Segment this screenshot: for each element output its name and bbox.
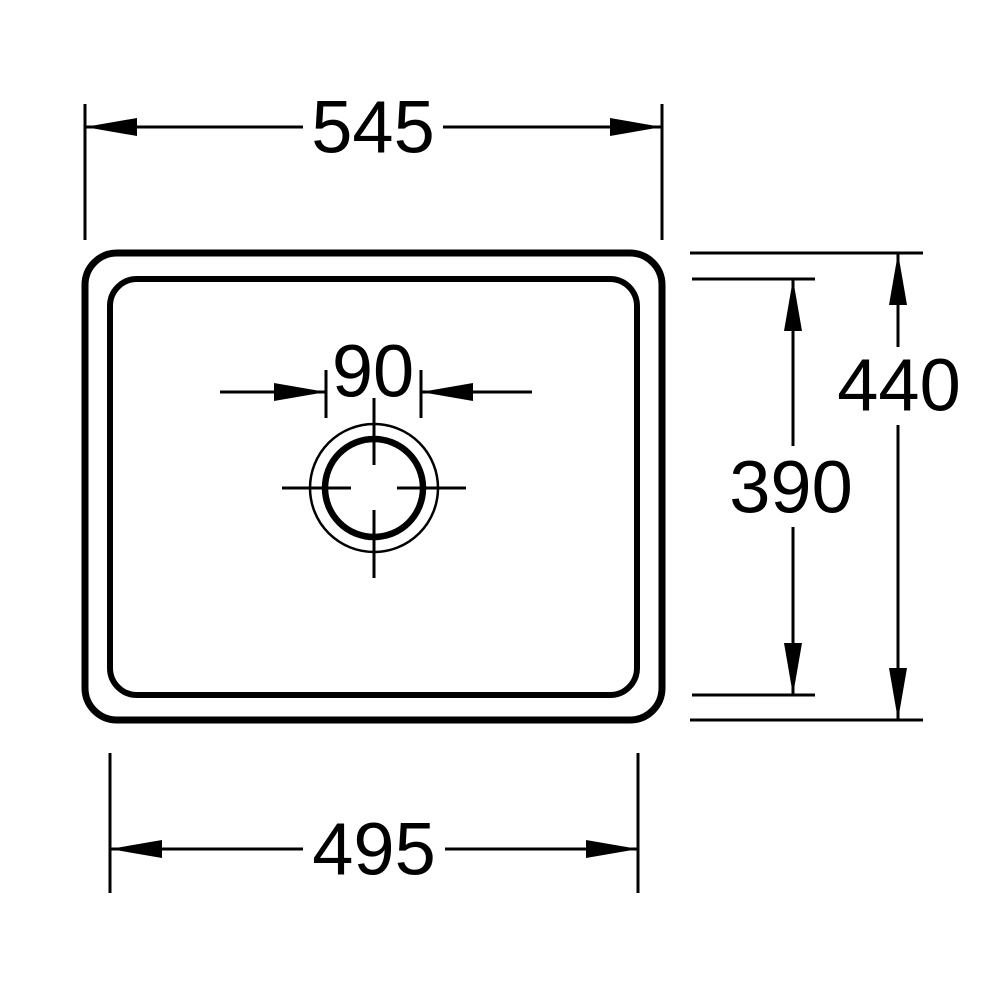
arrowhead-up [889,253,907,305]
dimension-label-drain-diameter: 90 [332,330,414,413]
arrowhead-pointing-left [421,383,473,401]
dimension-label-outer-height: 440 [837,344,960,427]
sink-outer-rim [85,253,662,720]
dimension-label-top-width: 545 [311,86,434,169]
dimension-drain-diameter: 90 [220,330,532,419]
arrowhead-right [586,840,638,858]
dimension-outer-height: 440 [837,253,960,720]
arrowhead-right [610,118,662,136]
sink-technical-drawing: 545 495 390 [0,0,992,997]
dimension-top-width: 545 [85,86,662,241]
dimension-label-inner-height: 390 [729,446,852,529]
arrowhead-down [784,643,802,695]
dimension-bottom-width: 495 [110,753,638,893]
arrowhead-left [110,840,162,858]
arrowhead-down [889,668,907,720]
arrowhead-pointing-right [274,383,326,401]
drawing-canvas: 545 495 390 [0,0,992,997]
arrowhead-up [784,279,802,331]
arrowhead-left [85,118,137,136]
dimension-label-bottom-width: 495 [312,808,435,891]
dimension-inner-height: 390 [729,279,852,695]
drain-centerlines [282,398,466,578]
